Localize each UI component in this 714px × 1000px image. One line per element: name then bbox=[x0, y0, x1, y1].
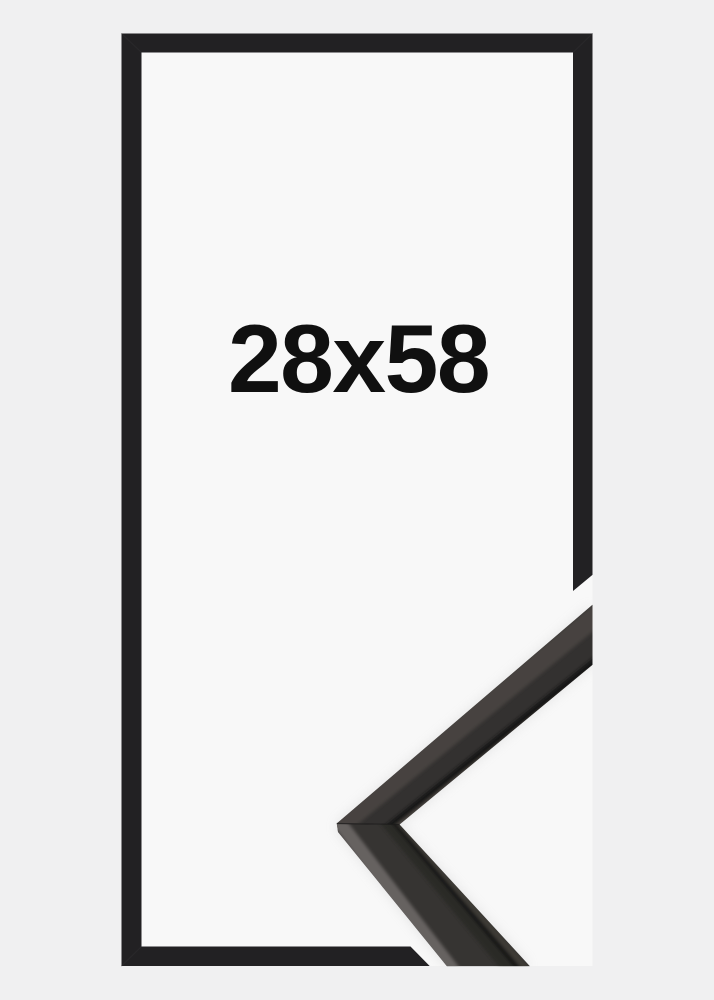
svg-text:28x58: 28x58 bbox=[228, 306, 489, 413]
